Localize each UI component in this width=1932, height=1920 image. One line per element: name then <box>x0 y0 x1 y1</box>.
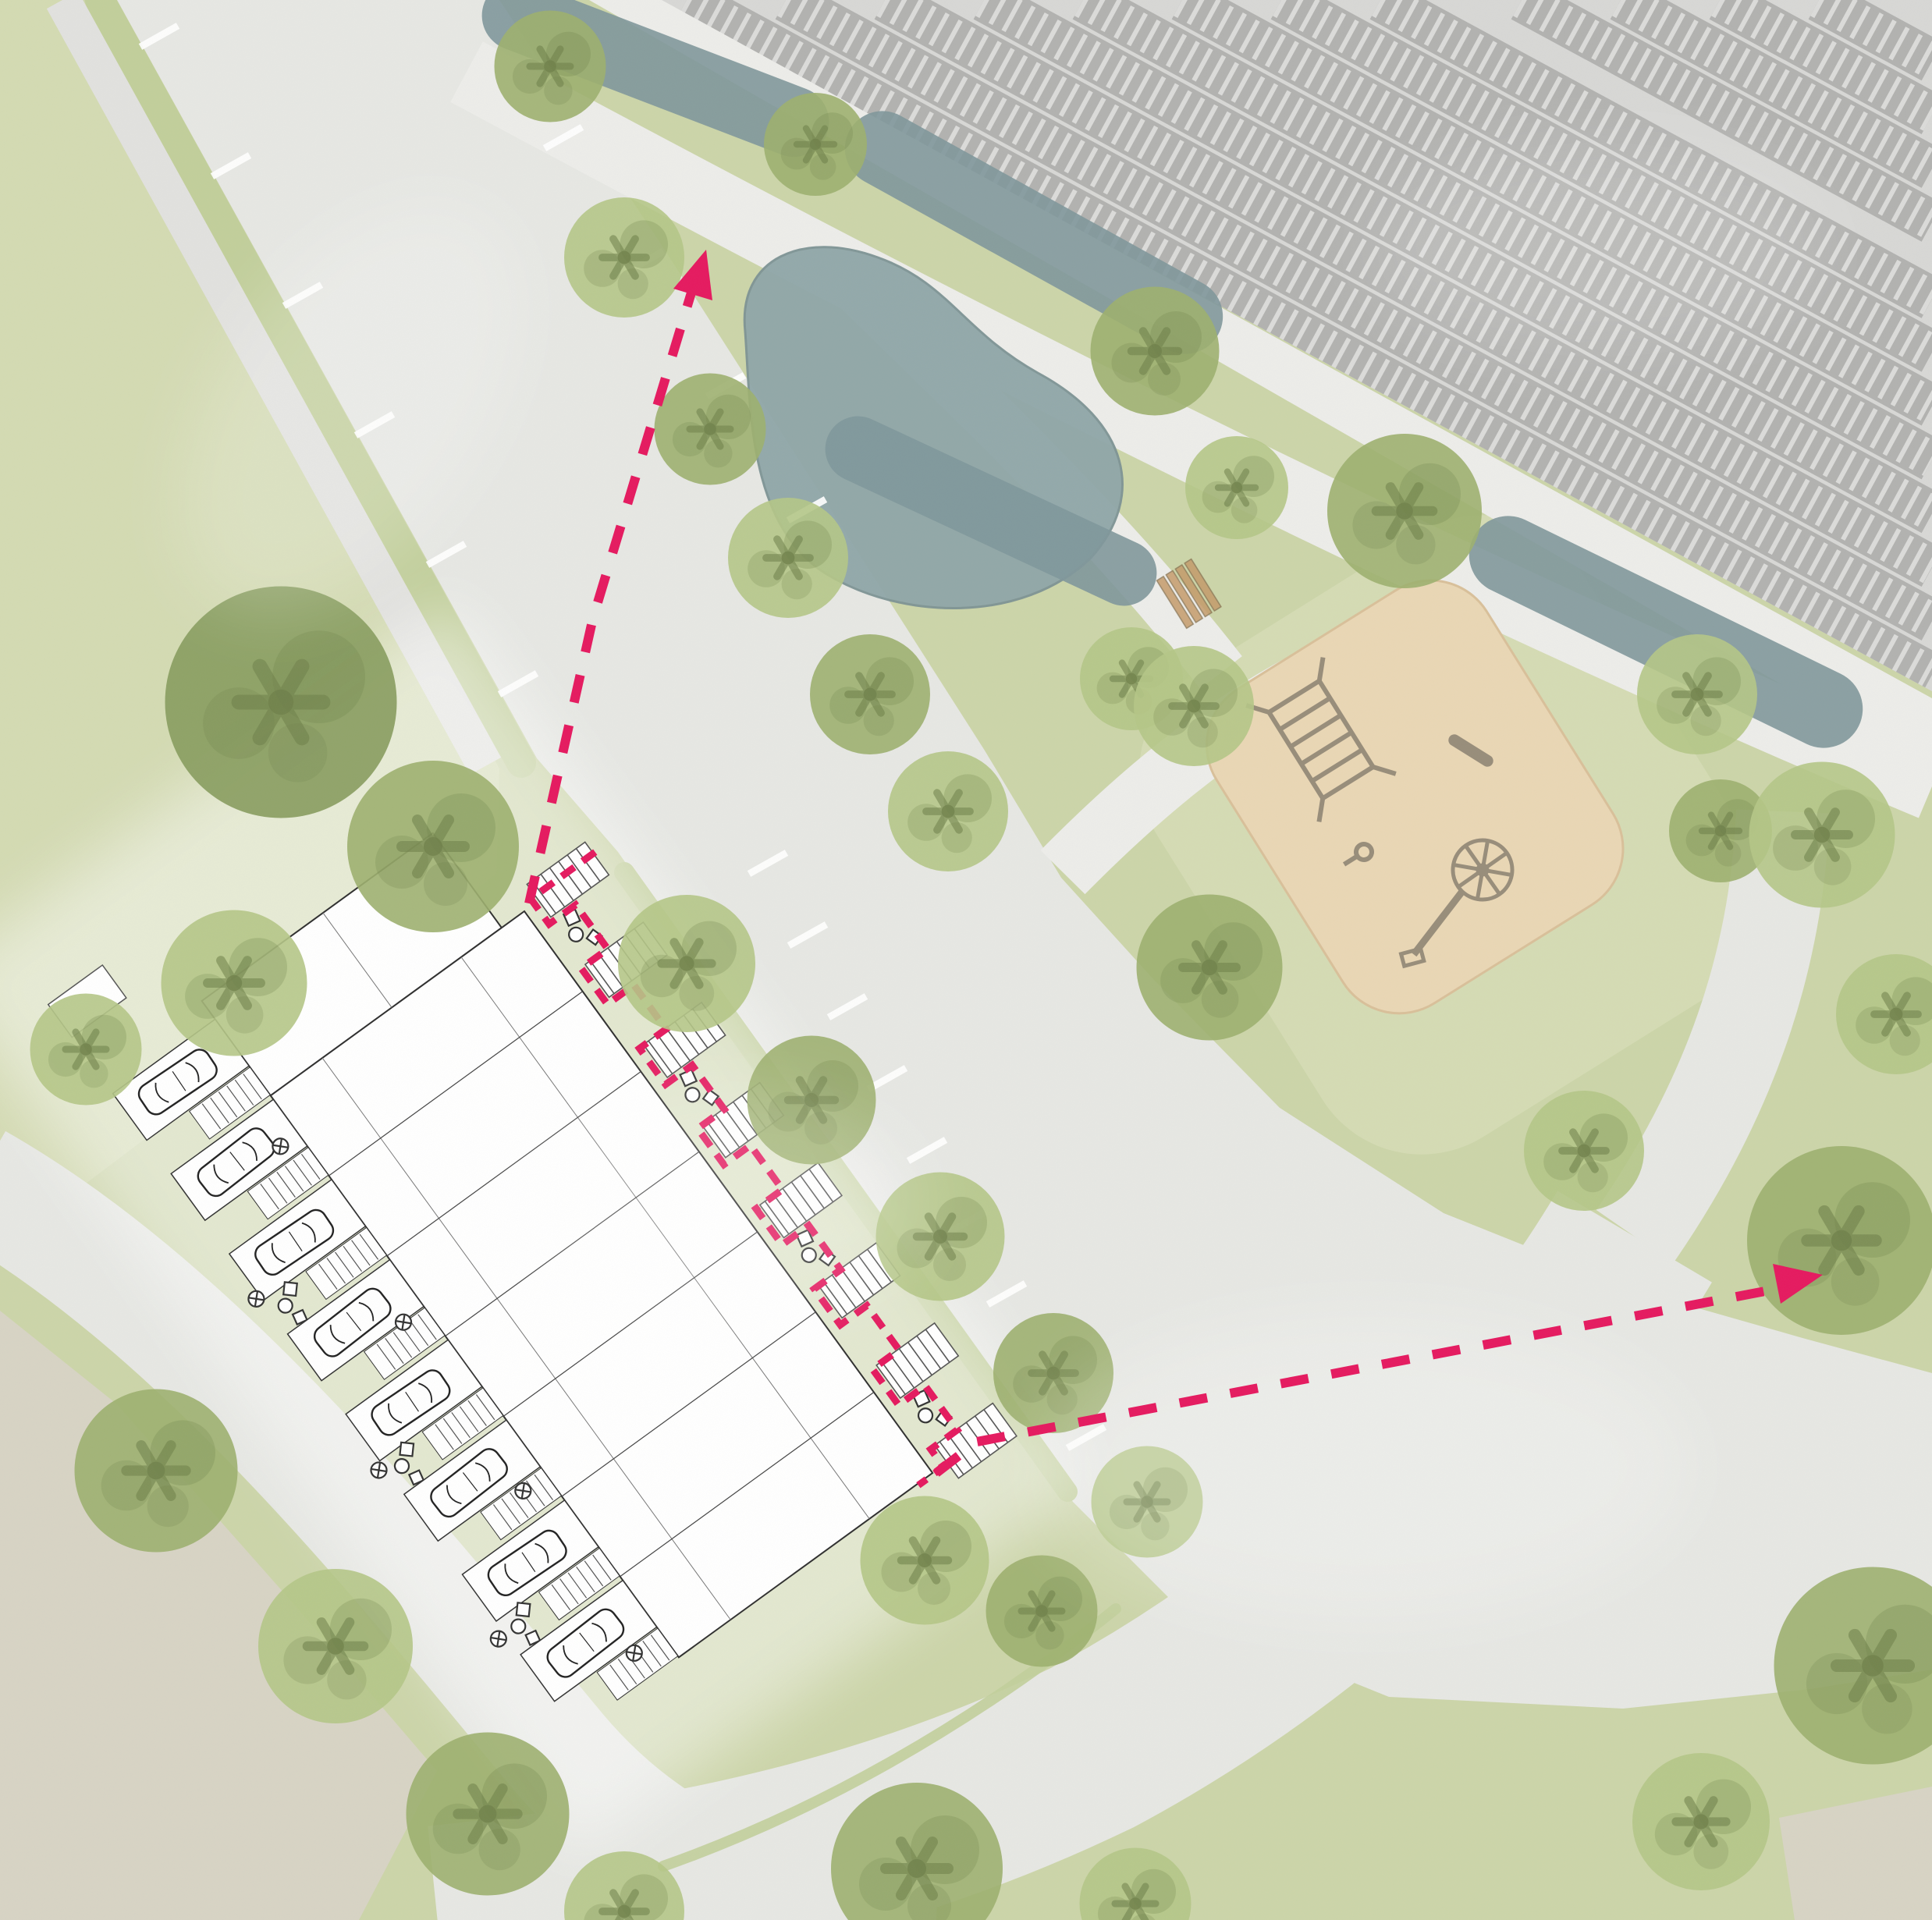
paper-texture <box>0 0 1932 1920</box>
site-plan-page <box>0 0 1932 1920</box>
site-plan-canvas <box>0 0 1932 1920</box>
